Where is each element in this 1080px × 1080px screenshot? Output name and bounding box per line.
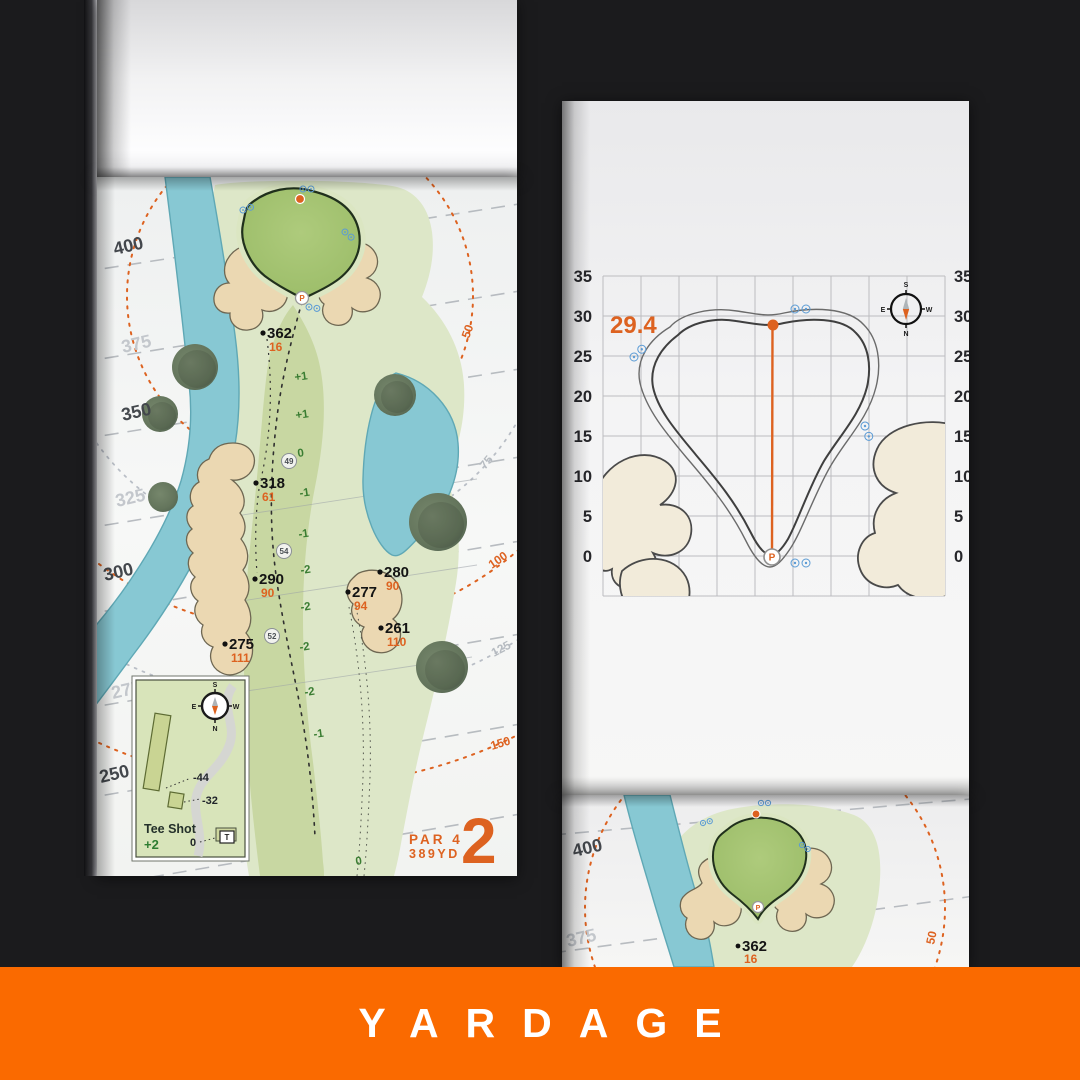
par-label: PAR 4 — [409, 832, 463, 847]
svg-text:25: 25 — [954, 348, 969, 366]
tee-offset-label: 0 — [190, 837, 196, 849]
tee-box-middle — [168, 792, 184, 809]
svg-text:E: E — [881, 307, 886, 314]
depth-value: 29.4 — [610, 312, 657, 339]
svg-text:111: 111 — [231, 651, 250, 665]
pin-letter: P — [299, 294, 305, 303]
hole-map: 49 54 52 +1 +1 0 -1 -1 -2 -2 -2 -2 -1 0 … — [97, 177, 517, 876]
svg-text:+1: +1 — [295, 408, 310, 422]
svg-text:N: N — [903, 331, 908, 338]
svg-text:+1: +1 — [294, 370, 309, 384]
page-fold-shadow — [562, 777, 969, 795]
green-detail-page: P 29.4 35 30 25 20 15 10 5 0 35 30 25 20… — [562, 101, 969, 795]
yardage-banner: YARDAGE — [0, 967, 1080, 1080]
svg-text:W: W — [926, 307, 933, 314]
green-detail-chart: P 29.4 35 30 25 20 15 10 5 0 35 30 25 20… — [562, 101, 969, 795]
svg-text:35: 35 — [954, 268, 969, 286]
svg-text:90: 90 — [386, 579, 400, 593]
page-curl-shadow — [562, 795, 590, 967]
next-hole-map: P 400 375 50 362 16 — [562, 795, 969, 967]
pin-letter: P — [756, 905, 761, 912]
svg-text:N: N — [212, 726, 217, 733]
page-fold-shadow — [97, 167, 517, 177]
hole-number: 2 — [461, 805, 497, 876]
flipped-page-back — [97, 0, 517, 177]
page-curl-shadow — [97, 177, 115, 876]
banner-label: YARDAGE — [331, 1000, 748, 1047]
tee-shot-inset: -44 -32 0 T — [132, 676, 249, 861]
tee-marker-box: T — [216, 828, 236, 843]
svg-text:16: 16 — [744, 952, 758, 966]
yardage-book-product-shot: 49 54 52 +1 +1 0 -1 -1 -2 -2 -2 -2 -1 0 … — [0, 0, 1080, 1080]
tee-symbol: T — [225, 833, 230, 842]
pin-letter: P — [769, 553, 776, 564]
tee-offset-label: -44 — [193, 772, 210, 784]
svg-text:S: S — [213, 682, 218, 689]
aim-dot — [296, 195, 305, 204]
svg-text:E: E — [192, 704, 197, 711]
svg-text:110: 110 — [387, 635, 407, 649]
svg-text:-2: -2 — [299, 641, 311, 654]
pin-marker: P — [296, 292, 309, 305]
book-spine — [84, 0, 98, 876]
svg-text:16: 16 — [269, 340, 283, 354]
svg-text:5: 5 — [954, 508, 963, 526]
svg-text:20: 20 — [954, 388, 969, 406]
circled-value: 52 — [268, 632, 277, 641]
svg-text:-2: -2 — [300, 601, 312, 614]
svg-text:94: 94 — [354, 599, 368, 613]
svg-text:61: 61 — [262, 490, 276, 504]
hole-map-page: 49 54 52 +1 +1 0 -1 -1 -2 -2 -2 -2 -1 0 … — [97, 177, 517, 876]
svg-text:W: W — [233, 704, 240, 711]
page-curl-shadow — [97, 0, 131, 177]
svg-text:90: 90 — [261, 586, 275, 600]
next-hole-page: P 400 375 50 362 16 — [562, 795, 969, 967]
svg-text:S: S — [904, 282, 909, 289]
svg-text:15: 15 — [954, 428, 969, 446]
svg-text:-2: -2 — [300, 564, 312, 577]
tee-shot-score: +2 — [144, 837, 159, 852]
tee-offset-label: -32 — [202, 795, 218, 807]
page-fold-shadow — [562, 795, 969, 807]
svg-text:30: 30 — [954, 308, 969, 326]
aim-dot — [752, 810, 760, 818]
svg-text:-2: -2 — [304, 686, 316, 699]
circled-value: 54 — [280, 547, 289, 556]
inset-title: Tee Shot — [144, 822, 197, 836]
circled-value: 49 — [285, 457, 294, 466]
svg-text:0: 0 — [954, 548, 963, 566]
page-curl-shadow — [562, 101, 590, 795]
yardage-label: 389YD — [409, 847, 460, 861]
svg-text:10: 10 — [954, 468, 969, 486]
pin-marker: P — [753, 902, 764, 913]
page-fold-shadow — [97, 177, 517, 191]
